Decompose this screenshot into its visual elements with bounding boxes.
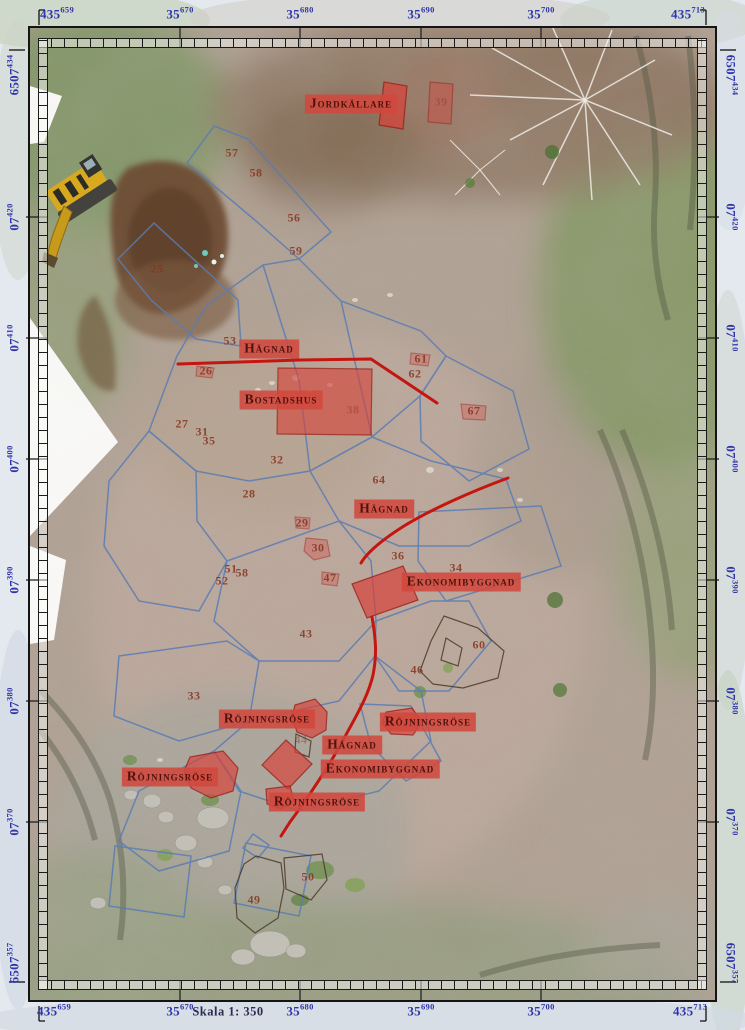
site-number-60: 60	[473, 638, 486, 653]
grid-coordinate-bottom: 435659	[37, 1002, 71, 1019]
archaeological-site-map: Skala 1: 350 435659356703568035690357004…	[0, 0, 745, 1030]
site-number-44: 44	[295, 733, 308, 748]
site-number-30: 30	[312, 541, 325, 556]
site-number-58: 58	[236, 566, 249, 581]
site-number-26: 26	[200, 364, 213, 379]
grid-coordinate-right: 07420	[722, 203, 739, 230]
site-number-59: 59	[290, 244, 303, 259]
grid-coordinate-bottom: 35700	[527, 1002, 554, 1019]
site-number-50: 50	[302, 870, 315, 885]
site-number-62: 62	[409, 367, 422, 382]
grid-coordinate-left: 07400	[5, 445, 22, 472]
grid-coordinate-left: 6507434	[5, 55, 22, 96]
site-number-25: 25	[151, 262, 164, 277]
grid-coordinate-left: 07410	[5, 324, 22, 351]
site-number-49: 49	[248, 893, 261, 908]
site-number-27: 27	[176, 417, 189, 432]
site-number-64: 64	[373, 473, 386, 488]
grid-coordinate-bottom: 35680	[286, 1002, 313, 1019]
rojningsrose-east-label: Röjningsröse	[380, 713, 476, 732]
site-number-32: 32	[271, 453, 284, 468]
grid-coordinate-right: 07410	[722, 324, 739, 351]
grid-coordinate-bottom: 35690	[407, 1002, 434, 1019]
border-band-left	[38, 38, 48, 990]
grid-coordinate-bottom: 35670	[166, 1002, 193, 1019]
grid-coordinate-bottom: 435713	[673, 1002, 707, 1019]
grid-coordinate-top: 35700	[527, 5, 554, 22]
rojningsrose-south-label: Röjningsröse	[269, 793, 365, 812]
site-number-57: 57	[226, 146, 239, 161]
grid-coordinate-right: 07400	[722, 445, 739, 472]
site-number-39: 39	[435, 95, 448, 110]
site-number-29: 29	[296, 516, 309, 531]
ekonomibyggnad-east-label: Ekonomibyggnad	[402, 573, 521, 592]
grid-coordinate-top: 435713	[671, 5, 705, 22]
grid-coordinate-right: 6507357	[722, 943, 739, 984]
grid-coordinate-top: 435659	[40, 5, 74, 22]
scale-text: Skala 1: 350	[192, 1005, 263, 1020]
border-band-top	[38, 38, 707, 48]
border-band-right	[697, 38, 707, 990]
grid-coordinate-top: 35680	[286, 5, 313, 22]
site-number-52: 52	[216, 574, 229, 589]
site-number-58: 58	[250, 166, 263, 181]
rojningsrose-west-label: Röjningsröse	[122, 768, 218, 787]
site-number-35: 35	[203, 434, 216, 449]
site-number-56: 56	[288, 211, 301, 226]
grid-coordinate-left: 07370	[5, 808, 22, 835]
hagnad-south-label: Hägnad	[322, 736, 382, 755]
site-number-38: 38	[347, 403, 360, 418]
ekonomibyggnad-south-label: Ekonomibyggnad	[321, 760, 440, 779]
grid-coordinate-left: 6507357	[5, 943, 22, 984]
grid-coordinate-left: 07390	[5, 566, 22, 593]
grid-coordinate-left: 07380	[5, 687, 22, 714]
site-number-47: 47	[324, 571, 337, 586]
bostadshus-label: Bostadshus	[240, 391, 323, 410]
site-number-46: 46	[411, 663, 424, 678]
hagnad-north-label: Hägnad	[239, 340, 299, 359]
site-number-33: 33	[188, 689, 201, 704]
grid-coordinate-right: 07390	[722, 566, 739, 593]
grid-coordinate-left: 07420	[5, 203, 22, 230]
hagnad-mid-label: Hägnad	[354, 500, 414, 519]
site-number-53: 53	[224, 334, 237, 349]
grid-coordinate-right: 07370	[722, 808, 739, 835]
grid-coordinate-right: 6507434	[722, 55, 739, 96]
border-band-bottom	[38, 980, 707, 990]
site-number-61: 61	[415, 352, 428, 367]
site-number-36: 36	[392, 549, 405, 564]
rojningsrose-north-label: Röjningsröse	[219, 710, 315, 729]
grid-coordinate-top: 35690	[407, 5, 434, 22]
site-number-43: 43	[300, 627, 313, 642]
jordkallare-label: Jordkällare	[305, 95, 397, 114]
grid-coordinate-top: 35670	[166, 5, 193, 22]
site-number-67: 67	[468, 404, 481, 419]
site-number-28: 28	[243, 487, 256, 502]
grid-coordinate-right: 07380	[722, 687, 739, 714]
